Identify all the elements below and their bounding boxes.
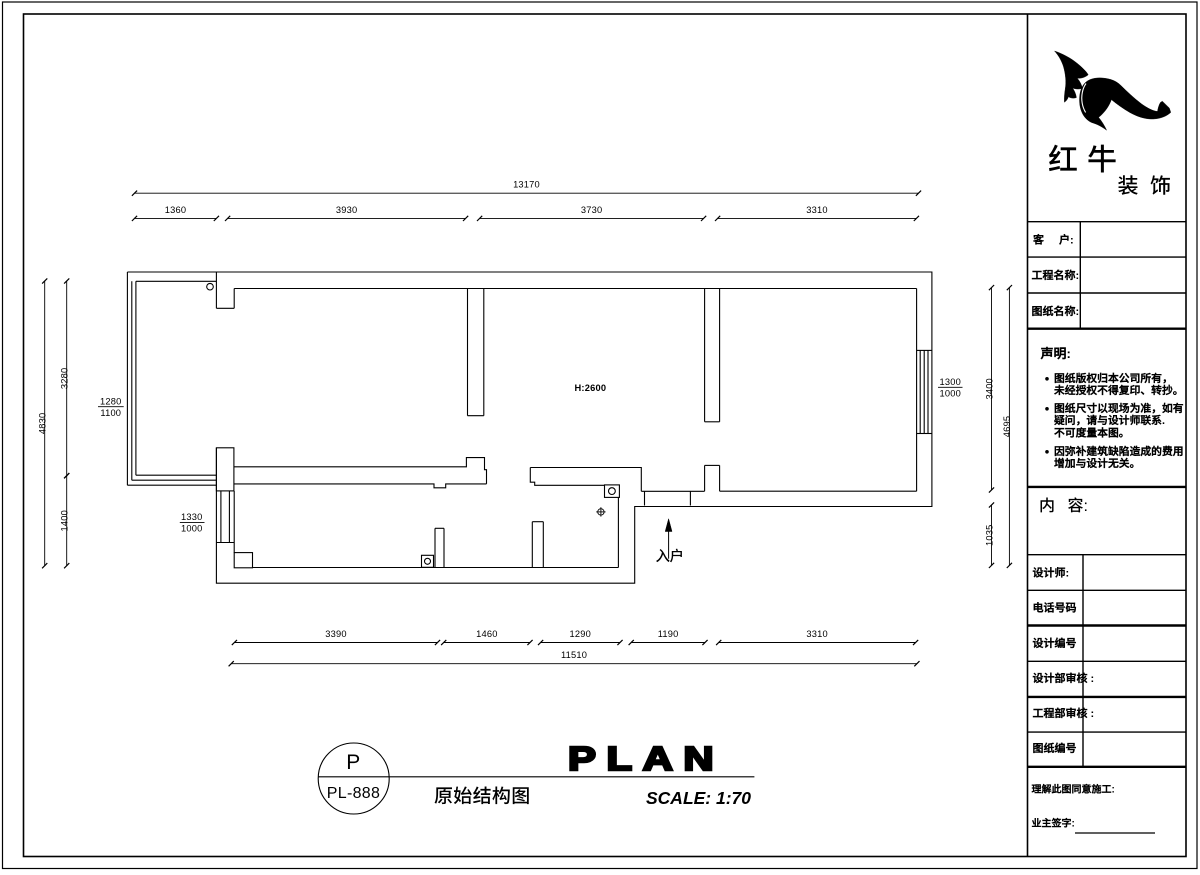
- svg-text:PL-888: PL-888: [327, 785, 380, 802]
- svg-text:1330: 1330: [181, 512, 202, 522]
- svg-text:H:2600: H:2600: [575, 383, 607, 393]
- svg-text:红: 红: [1048, 135, 1078, 179]
- svg-text:电话号码: 电话号码: [1033, 600, 1077, 616]
- svg-text:理解此图同意施工:: 理解此图同意施工:: [1032, 781, 1115, 796]
- svg-text:户:: 户:: [1058, 232, 1074, 248]
- svg-text:牛: 牛: [1087, 135, 1117, 179]
- svg-text:工程名称:: 工程名称:: [1032, 267, 1080, 283]
- svg-text:1290: 1290: [570, 629, 591, 639]
- svg-text:未经授权不得复印、转抄。: 未经授权不得复印、转抄。: [1053, 382, 1184, 398]
- svg-text:户: 户: [670, 545, 685, 566]
- svg-text:工程部审核 :: 工程部审核 :: [1033, 705, 1095, 721]
- svg-text:原始结构图: 原始结构图: [434, 782, 531, 809]
- svg-text:声明:: 声明:: [1040, 343, 1071, 362]
- svg-text:设计编号: 设计编号: [1033, 635, 1077, 651]
- svg-text:3310: 3310: [806, 205, 827, 215]
- svg-text:1360: 1360: [165, 205, 186, 215]
- svg-text:4830: 4830: [38, 413, 48, 434]
- svg-text:1190: 1190: [658, 629, 679, 639]
- svg-text:饰: 饰: [1150, 170, 1171, 200]
- svg-text:1035: 1035: [984, 524, 994, 545]
- svg-text:4695: 4695: [1002, 416, 1012, 437]
- svg-text:1460: 1460: [476, 629, 497, 639]
- svg-text:3730: 3730: [581, 205, 602, 215]
- svg-text:3400: 3400: [984, 378, 994, 399]
- svg-text:容:: 容:: [1068, 492, 1088, 516]
- svg-text:不可度量本图。: 不可度量本图。: [1054, 425, 1130, 441]
- svg-text:1400: 1400: [60, 510, 70, 531]
- svg-text:PLAN: PLAN: [568, 740, 724, 777]
- svg-text:增加与设计无关。: 增加与设计无关。: [1054, 455, 1140, 471]
- svg-text:11510: 11510: [561, 650, 587, 660]
- svg-text:图纸名称:: 图纸名称:: [1032, 303, 1080, 319]
- svg-text:装: 装: [1118, 170, 1139, 200]
- svg-text:入: 入: [656, 545, 671, 566]
- svg-text:1100: 1100: [100, 408, 121, 418]
- svg-text:客: 客: [1032, 232, 1045, 248]
- svg-text:P: P: [346, 751, 360, 774]
- svg-text:内: 内: [1039, 492, 1055, 516]
- svg-text:设计师:: 设计师:: [1033, 565, 1070, 581]
- svg-text:1300: 1300: [939, 377, 960, 387]
- svg-text:3310: 3310: [806, 629, 827, 639]
- svg-text:3390: 3390: [325, 629, 346, 639]
- svg-text:设计部审核 :: 设计部审核 :: [1033, 670, 1095, 686]
- svg-text:3280: 3280: [60, 368, 70, 389]
- svg-text:1000: 1000: [181, 524, 202, 534]
- svg-text:13170: 13170: [513, 180, 540, 190]
- svg-text:1280: 1280: [100, 397, 121, 407]
- svg-text:1000: 1000: [939, 389, 960, 399]
- svg-text:SCALE: 1:70: SCALE: 1:70: [646, 788, 751, 808]
- svg-text:图纸编号: 图纸编号: [1033, 740, 1077, 756]
- svg-text:业主签字:: 业主签字:: [1032, 815, 1075, 830]
- svg-text:3930: 3930: [336, 205, 357, 215]
